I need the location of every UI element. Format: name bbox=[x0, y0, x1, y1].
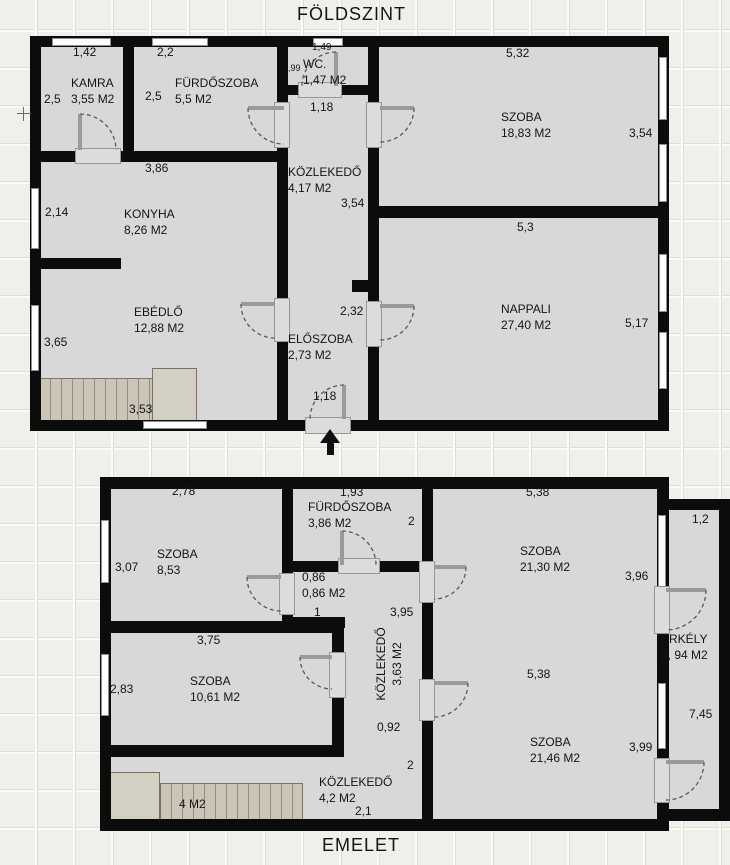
wall bbox=[663, 809, 730, 821]
window bbox=[659, 254, 667, 312]
room-label-erkely: ERKÉLY 8, 94 M2 bbox=[661, 632, 708, 664]
wall bbox=[368, 36, 379, 431]
floor-plan-canvas: FÖLDSZINT EMELET bbox=[0, 0, 730, 865]
entrance-arrow-stem bbox=[327, 442, 334, 455]
entrance-arrow-icon bbox=[320, 429, 340, 443]
room-area: 5,5 M2 bbox=[175, 92, 258, 108]
dim-nappali-height: 5,17 bbox=[625, 316, 648, 330]
wall bbox=[30, 258, 121, 269]
dim-ebedlo-height: 3,65 bbox=[44, 335, 67, 349]
door-opening-szoba1 bbox=[279, 573, 295, 615]
stairs-treads-ground bbox=[39, 378, 153, 423]
room-label-szoba2-upper: SZOBA 21,30 M2 bbox=[520, 544, 570, 576]
dim-szoba4-width: 3,75 bbox=[197, 633, 220, 647]
dim-kamra-width: 1,42 bbox=[73, 45, 96, 59]
room-label-nappali: NAPPALI 27,40 M2 bbox=[501, 302, 551, 334]
window bbox=[101, 520, 109, 583]
dim-nappali-width: 5,3 bbox=[517, 220, 534, 234]
room-label-kozlekedo-upper: KÖZLEKEDŐ 3,63 M2 bbox=[374, 627, 406, 700]
room-name: SZOBA bbox=[190, 674, 240, 690]
room-area: 27,40 M2 bbox=[501, 318, 551, 334]
window bbox=[659, 332, 667, 389]
dim-furdo-upper-width: 1,93 bbox=[340, 485, 363, 499]
dim-szoba1-height: 3,07 bbox=[115, 560, 138, 574]
wall bbox=[352, 280, 379, 292]
dim-wc-width: 1,49 bbox=[312, 42, 331, 53]
dim-szoba2-height: 3,96 bbox=[625, 569, 648, 583]
window bbox=[31, 188, 39, 249]
crosshair-marker-icon bbox=[17, 107, 31, 121]
room-name: SZOBA bbox=[520, 544, 570, 560]
dim-kozlekedo-right: 2 bbox=[407, 758, 414, 772]
door-opening-nappali bbox=[366, 301, 382, 347]
wall bbox=[123, 36, 134, 162]
room-area: 8,53 bbox=[157, 563, 198, 579]
window bbox=[31, 305, 39, 371]
dim-erkely-width: 1,2 bbox=[692, 512, 709, 526]
room-label-eloszoba: ELŐSZOBA 2,73 M2 bbox=[288, 332, 353, 364]
window bbox=[143, 421, 207, 429]
room-name: ELŐSZOBA bbox=[288, 332, 353, 348]
room-area: 0,86 M2 bbox=[302, 586, 345, 602]
window bbox=[658, 683, 666, 749]
room-area: 21,46 M2 bbox=[530, 751, 580, 767]
room-name: FÜRDŐSZOBA bbox=[175, 76, 258, 92]
room-label-kamra: KAMRA 3,55 M2 bbox=[71, 76, 114, 108]
room-label-furdoszoba-upper: FÜRDŐSZOBA 3,86 M2 bbox=[308, 500, 391, 532]
dim-kozlekedo-width: 1,18 bbox=[310, 100, 333, 114]
wall bbox=[277, 36, 288, 431]
door-opening-szoba2 bbox=[419, 561, 435, 603]
room-area: 8, 94 M2 bbox=[661, 648, 708, 664]
room-name: KÖZLEKEDŐ bbox=[319, 775, 392, 791]
dim-szoba-width: 5,32 bbox=[506, 46, 529, 60]
room-area: 21,30 M2 bbox=[520, 560, 570, 576]
dim-kozlekedo-height: 3,54 bbox=[341, 196, 364, 210]
room-name: KÖZLEKEDŐ bbox=[288, 165, 361, 181]
dim-kozlekedo-length: 3,95 bbox=[390, 605, 413, 619]
room-label-wc: WC. 1,47 M2 bbox=[303, 57, 346, 89]
door-opening-szoba4 bbox=[329, 652, 346, 698]
room-name: WC. bbox=[303, 57, 346, 73]
room-label-furdoszoba: FÜRDŐSZOBA 5,5 M2 bbox=[175, 76, 258, 108]
title-foldszint: FÖLDSZINT bbox=[297, 4, 406, 25]
balcony-door-lower bbox=[654, 758, 670, 803]
door-opening-kamra bbox=[75, 148, 121, 164]
room-name: SZOBA bbox=[530, 735, 580, 751]
room-name: SZOBA bbox=[501, 110, 551, 126]
title-emelet: EMELET bbox=[322, 835, 400, 856]
dim-furdo-width: 2,2 bbox=[157, 45, 174, 59]
wall bbox=[100, 621, 344, 633]
room-name: SZOBA bbox=[157, 547, 198, 563]
room-label-kozlekedo2-upper: KÖZLEKEDŐ 4,2 M2 bbox=[319, 775, 392, 807]
dim-szoba3-height: 3,99 bbox=[629, 740, 652, 754]
dim-eloszoba-height: 2,32 bbox=[340, 304, 363, 318]
door-opening-szoba3 bbox=[419, 679, 435, 721]
room-name: KÖZLEKEDŐ bbox=[374, 627, 390, 700]
window bbox=[658, 515, 666, 587]
room-name: NAPPALI bbox=[501, 302, 551, 318]
wall bbox=[100, 819, 669, 831]
room-label-kozlekedo: KÖZLEKEDŐ 4,17 M2 bbox=[288, 165, 361, 197]
window bbox=[101, 654, 109, 716]
room-area: 3,55 M2 bbox=[71, 92, 114, 108]
door-opening-szoba bbox=[366, 102, 382, 148]
room-label-konyha: KONYHA 8,26 M2 bbox=[124, 207, 175, 239]
room-name: KAMRA bbox=[71, 76, 114, 92]
room-label-ebedlo: EBÉDLŐ 12,88 M2 bbox=[134, 305, 184, 337]
dim-kamra086-depth: 1 bbox=[314, 605, 321, 619]
wall bbox=[719, 499, 730, 821]
room-label-szoba3-upper: SZOBA 21,46 M2 bbox=[530, 735, 580, 767]
room-label-kamra086: 0,86 0,86 M2 bbox=[302, 570, 345, 602]
window bbox=[659, 144, 667, 202]
stairs-area-label: 4 M2 bbox=[179, 797, 206, 811]
room-label-szoba4-upper: SZOBA 10,61 M2 bbox=[190, 674, 240, 706]
dim-furdo-upper-height: 2 bbox=[408, 514, 415, 528]
dim-szoba3-width: 5,38 bbox=[527, 667, 550, 681]
room-area: 1,47 M2 bbox=[303, 73, 346, 89]
wall bbox=[422, 477, 433, 831]
room-area: 10,61 M2 bbox=[190, 690, 240, 706]
room-name: FÜRDŐSZOBA bbox=[308, 500, 391, 516]
dim-entrance-width: 1,18 bbox=[313, 389, 336, 403]
dim-wc-height: 0,99 bbox=[283, 63, 301, 73]
stairs-landing-upper bbox=[105, 772, 160, 820]
room-area: 3,63 M2 bbox=[390, 627, 406, 700]
wall bbox=[100, 745, 344, 757]
room-name: KONYHA bbox=[124, 207, 175, 223]
dim-ebedlo-width: 3,53 bbox=[129, 402, 152, 416]
dim-kozlekedo-bottom: 0,92 bbox=[377, 720, 400, 734]
balcony-door-upper bbox=[654, 586, 670, 634]
dim-konyha-width: 3,86 bbox=[145, 161, 168, 175]
room-name: EBÉDLŐ bbox=[134, 305, 184, 321]
door-opening-furdoszoba bbox=[274, 102, 290, 148]
room-name: ERKÉLY bbox=[661, 632, 708, 648]
room-area: 12,88 M2 bbox=[134, 321, 184, 337]
dim-konyha-height: 2,14 bbox=[45, 205, 68, 219]
wall bbox=[368, 206, 669, 218]
dim-kamra-height: 2,5 bbox=[44, 92, 61, 106]
room-area: 18,83 M2 bbox=[501, 126, 551, 142]
dim-szoba2-width: 5,38 bbox=[526, 485, 549, 499]
stairs-landing-ground bbox=[152, 368, 197, 423]
dim-erkely-height: 7,45 bbox=[689, 707, 712, 721]
room-area: 4,17 M2 bbox=[288, 181, 361, 197]
dim-szoba4-height: 2,83 bbox=[110, 682, 133, 696]
dim-szoba1-width: 2,78 bbox=[172, 484, 195, 498]
dim-kozlekedo2-width: 2,1 bbox=[355, 804, 372, 818]
room-area: 2,73 M2 bbox=[288, 348, 353, 364]
room-area: 8,26 M2 bbox=[124, 223, 175, 239]
room-label-szoba1-upper: SZOBA 8,53 bbox=[157, 547, 198, 579]
room-name: 0,86 bbox=[302, 570, 345, 586]
window bbox=[659, 57, 667, 120]
room-label-szoba: SZOBA 18,83 M2 bbox=[501, 110, 551, 142]
dim-furdo-height: 2,5 bbox=[145, 89, 162, 103]
room-area: 3,86 M2 bbox=[308, 516, 391, 532]
dim-szoba-height: 3,54 bbox=[629, 126, 652, 140]
